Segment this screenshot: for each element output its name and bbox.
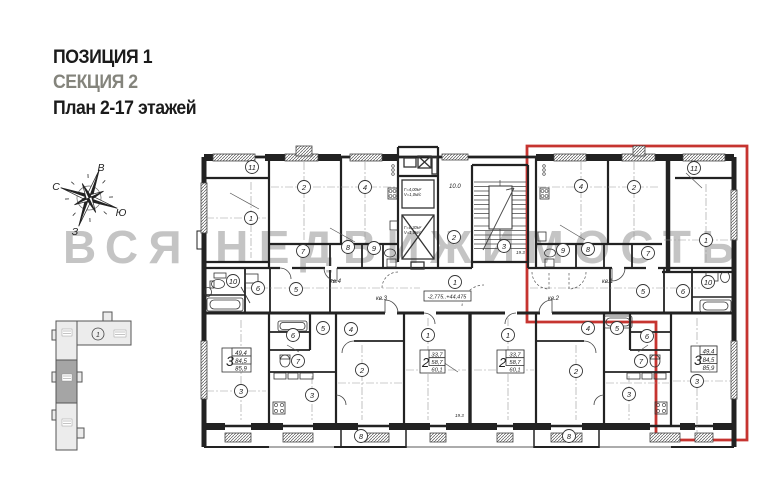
- svg-text:2: 2: [573, 367, 579, 376]
- svg-text:33,7: 33,7: [509, 353, 521, 359]
- svg-text:3: 3: [694, 352, 702, 368]
- svg-text:1: 1: [426, 331, 430, 340]
- svg-text:11: 11: [248, 163, 256, 172]
- svg-text:4: 4: [363, 183, 367, 192]
- svg-text:4: 4: [586, 324, 590, 333]
- svg-text:1: 1: [453, 278, 457, 287]
- svg-text:33,7: 33,7: [431, 353, 443, 359]
- svg-text:2: 2: [451, 233, 457, 242]
- svg-text:кв.3: кв.3: [376, 296, 388, 302]
- svg-text:V=1,0м/с: V=1,0м/с: [404, 230, 422, 235]
- svg-text:58,7: 58,7: [509, 360, 521, 366]
- svg-text:58,7: 58,7: [431, 360, 443, 366]
- svg-text:49,4: 49,4: [703, 350, 715, 356]
- svg-text:85,9: 85,9: [703, 366, 715, 372]
- svg-text:V=1,0м/с: V=1,0м/с: [404, 192, 422, 197]
- svg-text:-2,775..+44,475: -2,775..+44,475: [428, 295, 468, 301]
- svg-text:84,5: 84,5: [703, 358, 715, 364]
- svg-text:1: 1: [506, 331, 510, 340]
- svg-text:60,1: 60,1: [431, 368, 442, 374]
- svg-text:3: 3: [226, 353, 234, 369]
- svg-text:С: С: [52, 181, 60, 193]
- svg-text:85,9: 85,9: [235, 367, 247, 373]
- svg-text:10.0: 10.0: [449, 184, 461, 190]
- svg-text:4: 4: [579, 182, 583, 191]
- svg-text:1: 1: [96, 332, 100, 339]
- svg-text:кв.4: кв.4: [330, 279, 342, 285]
- svg-text:1: 1: [704, 236, 708, 245]
- svg-text:кв.1: кв.1: [602, 279, 613, 285]
- svg-text:З: З: [72, 226, 79, 238]
- svg-text:19.3: 19.3: [455, 413, 464, 418]
- svg-text:4: 4: [349, 325, 353, 334]
- svg-text:49,4: 49,4: [235, 351, 247, 357]
- svg-text:2: 2: [301, 183, 307, 192]
- svg-text:2: 2: [498, 355, 507, 370]
- svg-text:60,1: 60,1: [509, 368, 520, 374]
- svg-text:Ю: Ю: [116, 207, 127, 219]
- svg-text:2: 2: [359, 366, 365, 375]
- svg-text:10: 10: [229, 277, 238, 286]
- svg-text:84,5: 84,5: [235, 359, 247, 365]
- svg-text:19.3: 19.3: [516, 250, 525, 255]
- svg-text:11: 11: [690, 164, 698, 173]
- svg-text:2: 2: [631, 183, 637, 192]
- svg-text:кв.2: кв.2: [548, 296, 560, 302]
- svg-text:В: В: [97, 162, 104, 174]
- svg-text:1: 1: [249, 214, 253, 223]
- svg-text:10: 10: [704, 278, 713, 287]
- svg-text:2: 2: [421, 355, 430, 370]
